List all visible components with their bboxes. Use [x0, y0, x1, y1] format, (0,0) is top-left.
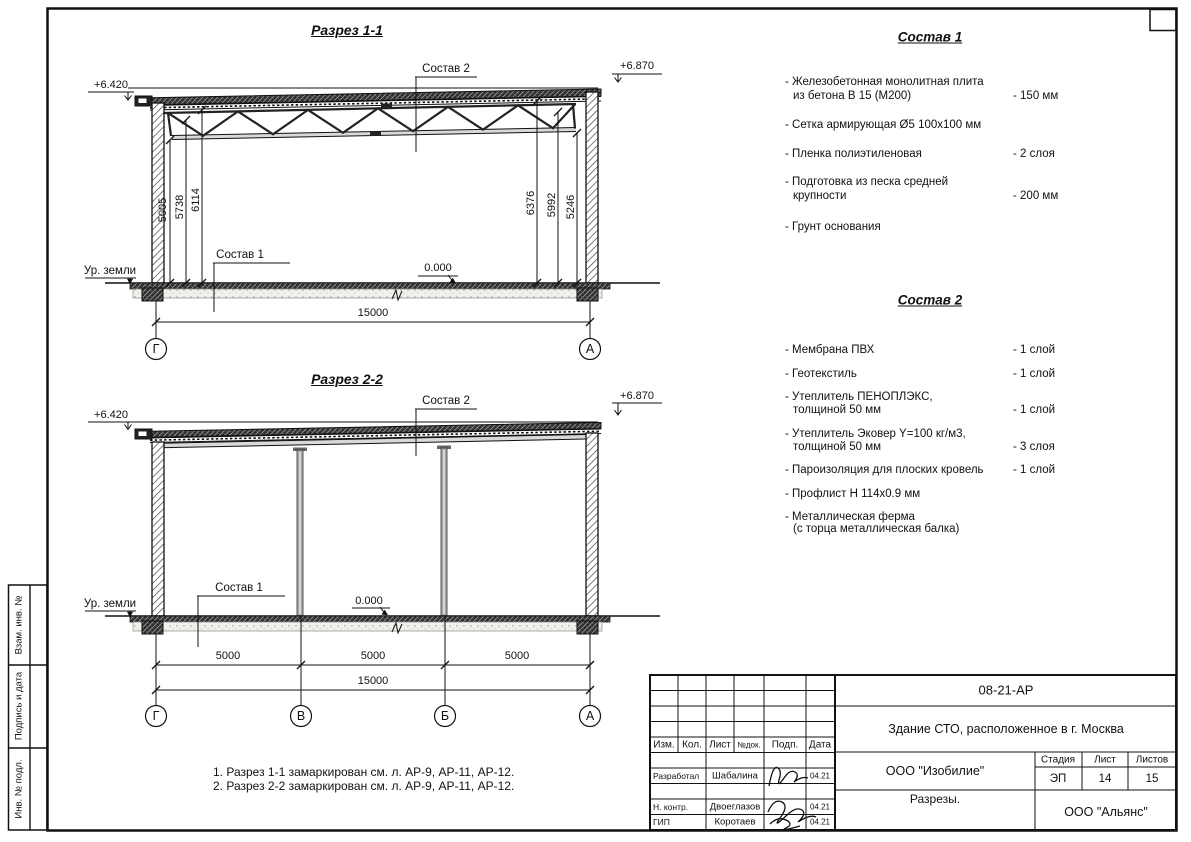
signature-control [768, 801, 816, 829]
stamp-date: 04.21 [810, 803, 830, 812]
stamp-name: Шабалина [712, 771, 758, 782]
stamp-role: Разработал [653, 771, 699, 781]
dim-text: 6114 [190, 188, 202, 212]
stamp-header-col: Кол. [682, 740, 702, 751]
floor-slab-hatch [130, 616, 610, 622]
stamp-header-col: №док. [737, 741, 760, 750]
axis-letter: Г [153, 342, 160, 356]
column-right [586, 433, 598, 616]
list-item: - Подготовка из песка средней [785, 176, 948, 188]
list-item: - Сетка армирующая Ø5 100x100 мм [785, 119, 981, 131]
section-1-title: Разрез 1-1 [311, 22, 383, 38]
bottom-dimensions [146, 616, 601, 727]
stamp-sheet-value: 14 [1099, 773, 1112, 785]
zero-level-mark: 0.000 [424, 262, 452, 274]
note-line: 2. Разрез 2-2 замаркирован см. л. АР-9, … [213, 779, 514, 793]
stamp-sheet-label: Лист [1094, 755, 1116, 766]
dim-text: 5992 [546, 193, 558, 217]
stamp-designer-org: ООО "Изобилие" [886, 764, 984, 778]
composition-2-title: Состав 2 [898, 293, 962, 308]
column-left [152, 103, 164, 283]
signatures [768, 767, 816, 829]
section-2-title: Разрез 2-2 [311, 371, 383, 387]
list-item: - Утеплитель ПЕНОПЛЭКС, [785, 391, 933, 403]
list-item: - Металлическая ферма [785, 511, 915, 523]
list-item-value: - 200 мм [1013, 190, 1058, 202]
sand-layer [133, 622, 602, 631]
list-item-value: - 1 слой [1013, 344, 1055, 356]
stamp-stage-value: ЭП [1050, 773, 1067, 785]
elevation-mark: +6.420 [94, 409, 128, 421]
stamp-project-title: Здание СТО, расположенное в г. Москва [888, 722, 1124, 736]
stamp-header-col: Подп. [772, 740, 799, 751]
note-line: 1. Разрез 1-1 замаркирован см. л. АР-9, … [213, 765, 514, 779]
elevation-mark: +6.870 [620, 60, 654, 72]
column-right [586, 92, 598, 283]
list-item: крупности [793, 190, 846, 202]
elevation-mark: +6.420 [94, 79, 128, 91]
dim-text: 5000 [216, 650, 240, 662]
axis-letter: А [586, 709, 594, 723]
list-item: - Пароизоляция для плоских кровель [785, 464, 984, 476]
leader-label-sostav2: Состав 2 [422, 395, 470, 407]
strip-label: Взам. инв. № [14, 596, 25, 655]
stamp-date: 04.21 [810, 772, 830, 781]
dim-text: 5005 [157, 198, 169, 222]
stamp-name: Коротаев [714, 817, 755, 828]
footing-right [577, 288, 598, 301]
ground-level-label: Ур. земли [84, 265, 136, 277]
axis-letter: В [297, 709, 305, 723]
sand-layer [133, 289, 602, 298]
drawing-sheet: Разрез 1-1 +6.420 +6.870 Состав 2 Состав… [0, 0, 1191, 842]
dim-text: 5738 [174, 195, 186, 219]
stamp-header-col: Дата [809, 740, 831, 751]
list-item: (с торца металлическая балка) [793, 523, 959, 535]
stamp-contractor-org: ООО "Альянс" [1064, 805, 1148, 819]
list-item: из бетона В 15 (М200) [793, 90, 911, 102]
list-item: толщиной 50 мм [793, 404, 881, 416]
list-item: - Геотекстиль [785, 368, 857, 380]
list-item: - Пленка полиэтиленовая [785, 148, 922, 160]
axis-letter: А [586, 342, 594, 356]
zero-level-mark: 0.000 [355, 595, 383, 607]
stamp-sheets-value: 15 [1146, 773, 1159, 785]
strip-label: Подпись и дата [14, 672, 25, 740]
stamp-header-col: Лист [709, 740, 731, 751]
dim-text: 5000 [505, 650, 529, 662]
ground-level-label: Ур. земли [84, 598, 136, 610]
leader-label-sostav1: Состав 1 [216, 249, 264, 261]
stamp-header-col: Изм. [653, 740, 674, 751]
list-item: - Грунт основания [785, 221, 881, 233]
footing-left [142, 288, 163, 301]
leader-label-sostav2: Состав 2 [422, 63, 470, 75]
list-item: - Железобетонная монолитная плита [785, 76, 984, 88]
stamp-stage-label: Стадия [1041, 755, 1075, 766]
elevation-mark: +6.870 [620, 390, 654, 402]
axis-letter: Б [441, 709, 449, 723]
corner-doc-box [1150, 10, 1176, 31]
stamp-role: ГИП [653, 817, 670, 827]
column-left [152, 442, 164, 616]
stamp-role: Н. контр. [653, 802, 688, 812]
axis-letter: Г [153, 709, 160, 723]
stamp-sheets-label: Листов [1136, 755, 1169, 766]
dim-text: 5000 [361, 650, 385, 662]
footing-right [577, 621, 598, 634]
list-item-value: - 1 слой [1013, 404, 1055, 416]
strip-label: Инв. № подл. [14, 759, 25, 818]
stamp-name: Двоеглазов [710, 802, 761, 813]
list-item: толщиной 50 мм [793, 441, 881, 453]
dim-text-total: 15000 [358, 675, 389, 687]
list-item-value: - 150 мм [1013, 90, 1058, 102]
footing-left [142, 621, 163, 634]
dim-text: 6376 [525, 191, 537, 215]
list-item-value: - 1 слой [1013, 368, 1055, 380]
stamp-doc-number: 08-21-АР [979, 683, 1034, 698]
list-item: - Профлист Н 114x0.9 мм [785, 488, 920, 500]
stamp-sheet-name: Разрезы. [910, 792, 960, 806]
list-item-value: - 1 слой [1013, 464, 1055, 476]
leader-label-sostav1: Состав 1 [215, 582, 263, 594]
dim-text-total: 15000 [358, 307, 389, 319]
list-item: - Утеплитель Эковер Y=100 кг/м3, [785, 428, 966, 440]
list-item: - Мембрана ПВХ [785, 344, 874, 356]
stamp-date: 04.21 [810, 818, 830, 827]
list-item-value: - 3 слоя [1013, 441, 1055, 453]
dim-text: 5246 [565, 195, 577, 219]
drawing-linework [0, 0, 1191, 842]
composition-1-title: Состав 1 [898, 30, 962, 45]
list-item-value: - 2 слоя [1013, 148, 1055, 160]
